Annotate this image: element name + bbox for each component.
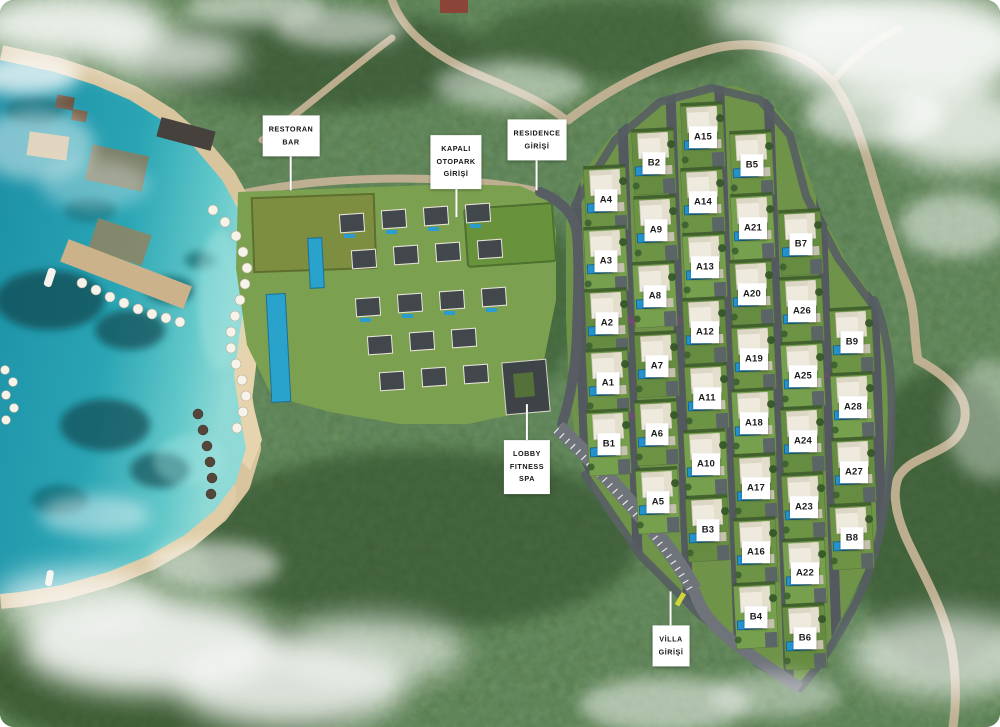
callout-pointer — [670, 591, 672, 625]
callout-line: FITNESS — [510, 461, 544, 474]
callouts-layer: RESTORANBARKAPALIOTOPARKGİRİŞİRESIDENCEG… — [0, 0, 1000, 727]
callout-kapali-otopark-girisi: KAPALIOTOPARKGİRİŞİ — [430, 135, 481, 189]
site-plan: A4A3A2A1B1B2A9A8A7A6A5A15A14A13A12A11A10… — [0, 0, 1000, 727]
callout-line: GİRİŞİ — [436, 168, 475, 181]
callout-residence-girisi: RESIDENCEGİRİŞİ — [508, 119, 567, 160]
callout-line: BAR — [269, 136, 314, 149]
callout-line: OTOPARK — [436, 156, 475, 169]
callout-line: GİRİŞİ — [659, 646, 684, 659]
callout-villa-girisi: VİLLAGİRİŞİ — [653, 625, 690, 666]
callout-pointer — [455, 189, 457, 217]
callout-line: SPA — [510, 473, 544, 486]
callout-line: RESIDENCE — [514, 127, 561, 140]
callout-restoran-bar: RESTORANBAR — [263, 115, 320, 156]
callout-line: RESTORAN — [269, 123, 314, 136]
callout-lobby-fitness-spa: LOBBYFITNESSSPA — [504, 440, 550, 494]
callout-pointer — [290, 157, 292, 191]
callout-pointer — [526, 404, 528, 440]
callout-pointer — [536, 161, 538, 191]
callout-line: LOBBY — [510, 448, 544, 461]
callout-line: KAPALI — [436, 143, 475, 156]
callout-line: VİLLA — [659, 633, 684, 646]
callout-line: GİRİŞİ — [514, 140, 561, 153]
